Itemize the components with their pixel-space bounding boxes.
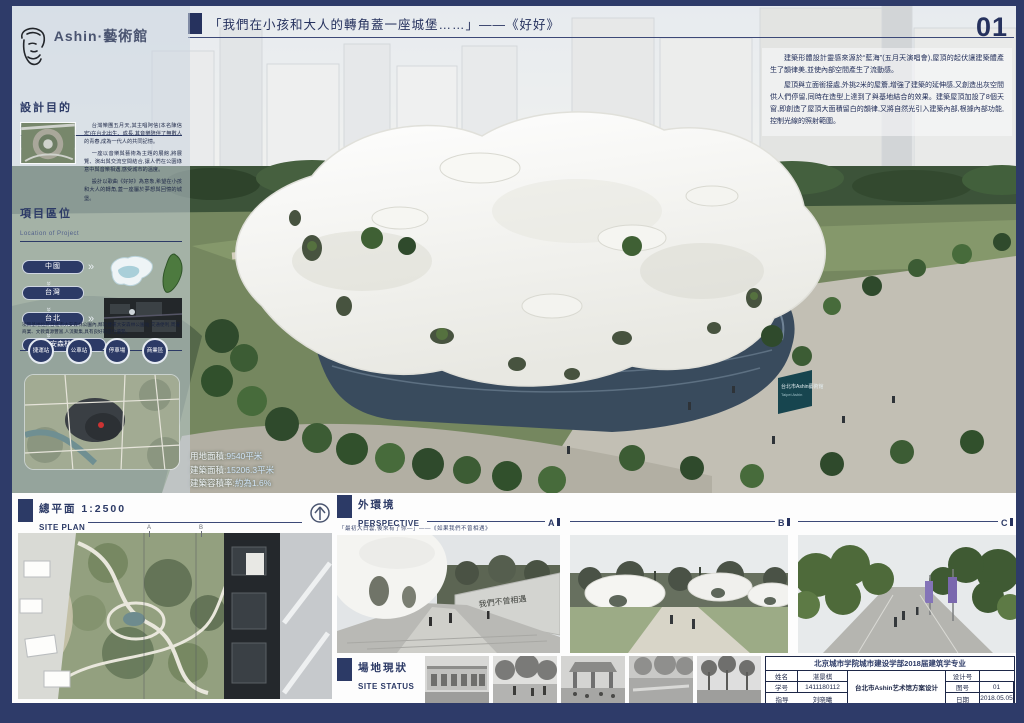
site-status-title: 場地現狀 xyxy=(358,662,408,674)
perspective-quote: 「最初大白雲,後來有了你—」——《如果我們不曾相遇》 xyxy=(339,524,491,532)
rule-c xyxy=(798,521,998,522)
presentation-board: 台北市Ashin藝術館 Taipei Ashin 「我們在小孩和大人的轉角蓋一座… xyxy=(0,0,1024,723)
section-cut-marker-a: A xyxy=(144,525,154,537)
site-plan-header: 總平面 1:2500 SITE PLAN xyxy=(18,499,332,535)
location-subtitle: Location of Project xyxy=(20,231,79,237)
site-plan-subtitle: SITE PLAN xyxy=(39,523,85,532)
page-number: 01 xyxy=(976,12,1008,43)
node-parking[interactable]: 停車場 xyxy=(104,338,130,364)
chevron-down-icon: » xyxy=(45,307,54,309)
design-no-label: 设计号 xyxy=(946,671,980,682)
site-plan-map: A B xyxy=(18,533,332,699)
site-plan-illustration xyxy=(18,533,332,699)
sheet-no-label: 图号 xyxy=(946,682,980,693)
stat-line: 建築容積率:約為1.6% xyxy=(190,477,274,491)
status-photo-palms xyxy=(697,656,761,703)
quote-bullet-square xyxy=(188,13,202,34)
advisor-value: 刘晓曦 xyxy=(798,693,848,703)
label-a: A xyxy=(548,513,560,531)
node-bus[interactable]: 公車站 xyxy=(66,338,92,364)
label-c: C xyxy=(1001,513,1013,531)
label-b: B xyxy=(778,513,790,531)
name-value: 湛景棋 xyxy=(798,671,848,682)
status-photo-pond xyxy=(629,656,693,703)
site-status-photos xyxy=(425,656,761,703)
chevron-down-icon: » xyxy=(45,281,54,283)
tick-mark xyxy=(787,518,790,526)
perspective-title: 外環境 xyxy=(358,499,396,511)
chevron-right-icon: » xyxy=(88,261,92,273)
node-mrt[interactable]: 捷運站 xyxy=(28,338,54,364)
sheet-no-value: 01 xyxy=(980,682,1014,693)
perspective-image-c xyxy=(798,535,1016,653)
site-plan-title: 總平面 1:2500 xyxy=(39,503,126,515)
sign-text-zh: 台北市Ashin藝術館 xyxy=(781,383,824,390)
design-no-value xyxy=(980,671,1014,682)
stat-line: 建築面積:15206.3平米 xyxy=(190,464,274,478)
date-value: 2018.05.05 xyxy=(980,693,1014,703)
student-id-label: 学号 xyxy=(766,682,798,693)
design-aim-paragraphs: 台灣樂團五月天,其主唱阿信(本名陳信宏)在台北出生、成長,其音樂陪伴了無數人的青… xyxy=(84,122,182,207)
brand-block: Ashin·藝術館 xyxy=(12,24,190,46)
lower-band: 總平面 1:2500 SITE PLAN A B xyxy=(12,493,1016,703)
aim-paragraph: 設計以歌曲《好好》為意象,希望在小孩和大人的轉角,蓋一座屬於夢想與回憶的城堡。 xyxy=(84,178,182,202)
board-canvas: 台北市Ashin藝術館 Taipei Ashin 「我們在小孩和大人的轉角蓋一座… xyxy=(12,6,1016,703)
section-bullet-square xyxy=(18,499,33,522)
north-arrow-icon xyxy=(308,501,332,530)
perspective-image-b xyxy=(570,535,788,653)
site-status-subtitle: SITE STATUS xyxy=(358,682,414,691)
node-commercial[interactable]: 商業區 xyxy=(142,338,168,364)
rule-b xyxy=(570,521,775,522)
project-title: 台北市Ashin艺术馆方案设计 xyxy=(848,671,946,703)
header-quote: 「我們在小孩和大人的轉角蓋一座城堡……」——《好好》 xyxy=(188,13,560,34)
section-bullet-square xyxy=(337,495,352,518)
section-design-aim: 設計目的 Aim of Design xyxy=(20,98,182,202)
hero-rendering: 台北市Ashin藝術館 Taipei Ashin 「我們在小孩和大人的轉角蓋一座… xyxy=(12,6,1016,493)
aim-paragraph: 一座以音樂與藝術為主題的展館,將展覽、演出與交流空間結合,讓人們在公園綠意中與音… xyxy=(84,150,182,174)
location-button-taiwan[interactable]: 台灣 xyxy=(22,286,84,300)
project-stats: 用地面積:9540平米 建築面積:15206.3平米 建築容積率:約為1.6% xyxy=(190,450,274,491)
date-label: 日期 xyxy=(946,693,980,703)
rule-a xyxy=(427,521,545,522)
perspective-image-a: 我們不曾相遇 xyxy=(337,535,560,653)
sign-text-en: Taipei Ashin xyxy=(781,392,802,397)
status-photo-park-path xyxy=(493,656,557,703)
tick-mark xyxy=(557,518,560,526)
title-block: 北京城市学院城市建设学部2018届建筑学专业 姓名 湛景棋 台北市Ashin艺术… xyxy=(765,656,1015,703)
tick-mark xyxy=(1010,518,1013,526)
status-photo-pavilion xyxy=(561,656,625,703)
china-map xyxy=(104,254,156,292)
site-plan-rule xyxy=(88,522,302,523)
status-photo-colonnade xyxy=(425,656,489,703)
student-id-value: 1411180112 xyxy=(798,682,848,693)
concept-paragraph: 屋頂與立面銜接處,外挑2米的屋簷,增強了建築的延伸感,又創造出灰空間供人們停留,… xyxy=(770,80,1004,129)
name-label: 姓名 xyxy=(766,671,798,682)
location-button-china[interactable]: 中國 xyxy=(22,260,84,274)
site-plan-block: 總平面 1:2500 SITE PLAN A B xyxy=(18,499,332,535)
taiwan-map xyxy=(160,252,186,296)
location-title: 項目區位 xyxy=(20,208,72,220)
school-name: 北京城市学院城市建设学部2018届建筑学专业 xyxy=(766,657,1014,671)
city-context-map xyxy=(24,374,180,470)
site-node-diagram: 捷運站 公車站 停車場 商業區 xyxy=(20,336,182,366)
ashin-portrait-sketch-icon xyxy=(12,24,52,70)
header-rule xyxy=(188,37,1014,38)
stat-line: 用地面積:9540平米 xyxy=(190,450,274,464)
design-aim-title: 設計目的 xyxy=(20,102,72,114)
location-note: 項目基地位於台北市大安森林公園內,鄰近捷運大安森林公園站,交通便利,周邊商業、文… xyxy=(22,322,180,336)
concept-paragraph: 建築形體設計靈感來源於“藍海”(五月天演唱會),屋頂的起伏讓建築體產生了韻律美,… xyxy=(770,53,1004,78)
section-bullet-square xyxy=(337,658,352,681)
aim-paragraph: 台灣樂團五月天,其主唱阿信(本名陳信宏)在台北出生、成長,其音樂陪伴了無數人的青… xyxy=(84,122,182,146)
location-header: 項目區位 Location of Project xyxy=(20,204,182,242)
section-cut-marker-b: B xyxy=(196,525,206,537)
quote-text: 「我們在小孩和大人的轉角蓋一座城堡……」——《好好》 xyxy=(209,14,560,33)
left-info-panel: Ashin·藝術館 設計目的 Aim of Design xyxy=(12,6,190,493)
design-concept-text: 建築形體設計靈感來源於“藍海”(五月天演唱會),屋頂的起伏讓建築體產生了韻律美,… xyxy=(762,48,1012,136)
advisor-label: 指导 xyxy=(766,693,798,703)
amphitheater-photo xyxy=(20,122,76,164)
